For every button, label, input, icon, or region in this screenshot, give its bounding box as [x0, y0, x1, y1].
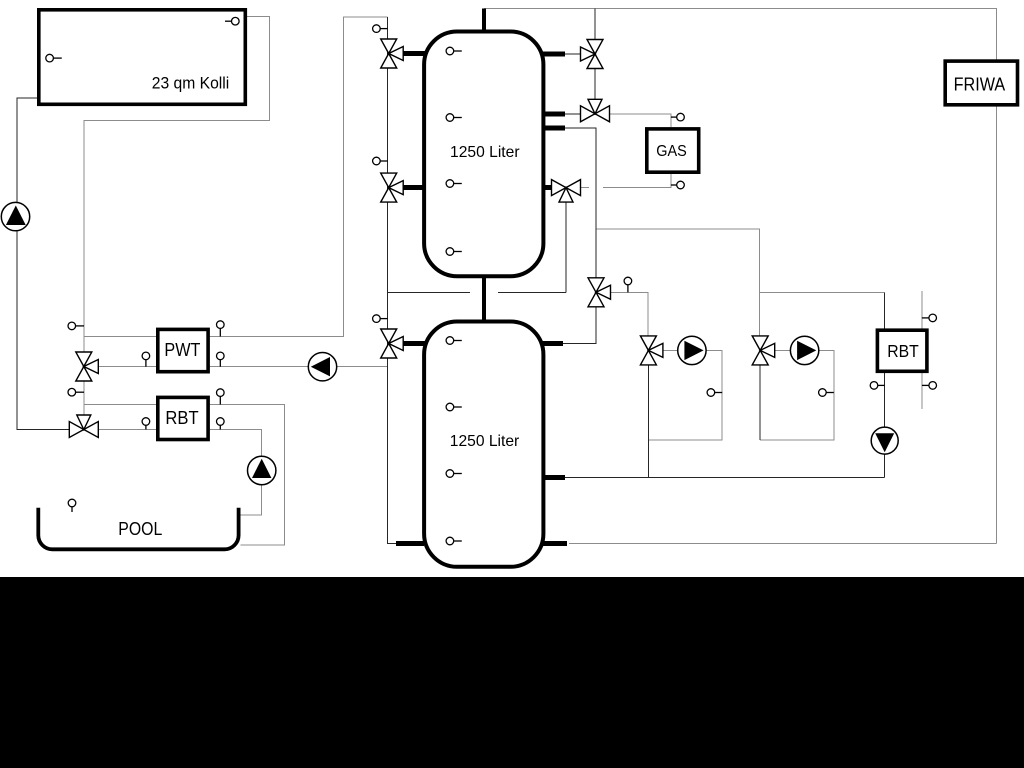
- svg-text:1250 Liter: 1250 Liter: [450, 433, 520, 450]
- svg-text:POOL: POOL: [118, 518, 162, 539]
- svg-text:23 qm Kolli: 23 qm Kolli: [152, 74, 230, 92]
- svg-text:GAS: GAS: [656, 143, 687, 160]
- svg-text:PWT: PWT: [164, 339, 200, 360]
- svg-text:RBT: RBT: [165, 408, 198, 428]
- svg-text:1250 Liter: 1250 Liter: [450, 144, 520, 161]
- svg-text:FRIWA: FRIWA: [954, 73, 1006, 94]
- svg-text:RBT: RBT: [887, 341, 919, 361]
